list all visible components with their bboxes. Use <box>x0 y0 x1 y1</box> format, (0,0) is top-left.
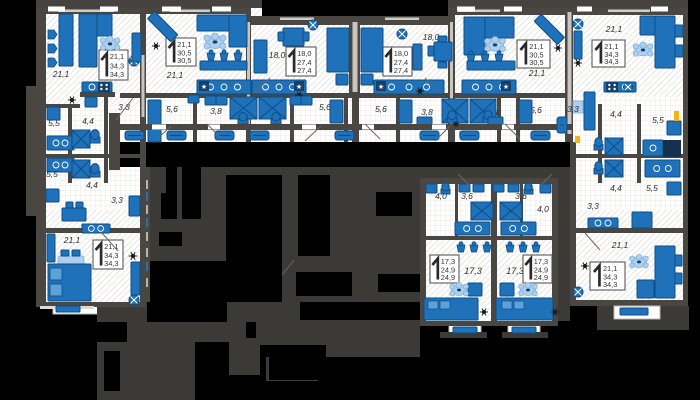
svg-text:34,3: 34,3 <box>110 70 124 79</box>
svg-text:5,6: 5,6 <box>166 104 178 114</box>
svg-text:4,0: 4,0 <box>537 204 549 214</box>
svg-text:17,3: 17,3 <box>464 266 482 276</box>
svg-text:24,9: 24,9 <box>534 273 548 282</box>
svg-text:18,0: 18,0 <box>394 49 408 58</box>
svg-text:★: ★ <box>503 83 509 91</box>
svg-text:5,5: 5,5 <box>46 169 58 179</box>
svg-text:21,1: 21,1 <box>110 52 124 61</box>
svg-text:★: ★ <box>201 83 207 91</box>
svg-text:5,5: 5,5 <box>652 115 664 125</box>
svg-text:18,0: 18,0 <box>297 49 311 58</box>
svg-text:3,8: 3,8 <box>210 106 222 116</box>
svg-text:★: ★ <box>296 83 302 91</box>
svg-text:5,6: 5,6 <box>375 104 387 114</box>
svg-text:18,0: 18,0 <box>269 50 286 60</box>
svg-text:18,0: 18,0 <box>423 32 440 42</box>
svg-text:21,1: 21,1 <box>605 24 623 34</box>
svg-text:4,4: 4,4 <box>86 180 98 190</box>
svg-text:3,8: 3,8 <box>421 107 433 117</box>
svg-text:34,3: 34,3 <box>603 280 617 289</box>
svg-text:3,3: 3,3 <box>587 201 599 211</box>
svg-text:3,3: 3,3 <box>111 195 123 205</box>
svg-text:4,4: 4,4 <box>82 116 94 126</box>
svg-text:4,4: 4,4 <box>610 109 622 119</box>
svg-text:21,1: 21,1 <box>52 69 70 79</box>
svg-text:24,9: 24,9 <box>441 273 455 282</box>
svg-text:27,4: 27,4 <box>297 66 311 75</box>
svg-text:3,3: 3,3 <box>567 104 579 114</box>
svg-text:★: ★ <box>378 83 384 91</box>
svg-text:30,5: 30,5 <box>529 58 543 67</box>
svg-text:17,3: 17,3 <box>506 266 524 276</box>
svg-text:21,1: 21,1 <box>166 70 184 80</box>
svg-text:21,1: 21,1 <box>63 235 81 245</box>
svg-text:21,1: 21,1 <box>528 68 546 78</box>
svg-text:5,6: 5,6 <box>319 102 331 112</box>
svg-text:34,3: 34,3 <box>104 259 118 268</box>
svg-text:21,1: 21,1 <box>611 240 629 250</box>
svg-text:4,4: 4,4 <box>610 183 622 193</box>
svg-text:27,4: 27,4 <box>394 66 408 75</box>
svg-text:30,5: 30,5 <box>177 56 191 65</box>
svg-text:34,3: 34,3 <box>604 57 618 66</box>
svg-text:5,5: 5,5 <box>646 183 658 193</box>
